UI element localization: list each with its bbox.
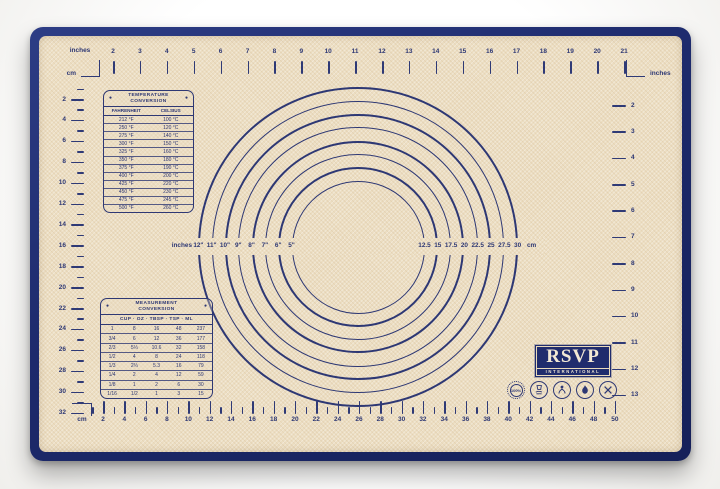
- top-ruler-tick: [463, 61, 465, 74]
- measurement-cell: 6: [168, 382, 190, 388]
- measurement-cell: 8: [145, 354, 167, 360]
- bottom-ruler-number: 14: [221, 416, 241, 424]
- bottom-ruler-minor-tick: [476, 407, 478, 414]
- bottom-ruler-minor-tick: [604, 407, 606, 414]
- top-ruler-tick: [624, 61, 626, 74]
- measurement-cell: 1/8: [101, 382, 123, 388]
- measurement-table-row: 1/24824118: [101, 353, 212, 362]
- left-ruler-number: 6: [38, 137, 66, 145]
- temperature-table-row: 375 °F190 °C: [104, 165, 193, 173]
- left-ruler-minor-tick: [77, 193, 84, 195]
- measurement-cell: 2/3: [101, 345, 123, 351]
- bottom-ruler-minor-tick: [284, 407, 286, 414]
- top-ruler-number: 9: [291, 48, 311, 56]
- temperature-cell: 230 °C: [149, 189, 194, 195]
- top-ruler-tick: [140, 61, 142, 74]
- hand-wash-icon: [530, 381, 548, 399]
- left-ruler-minor-tick: [77, 277, 84, 279]
- temperature-cell: 120 °C: [149, 125, 194, 131]
- temperature-cell: 140 °C: [149, 133, 194, 139]
- temperature-cell: 200 °C: [149, 173, 194, 179]
- bottom-ruler-tick: [124, 401, 126, 414]
- bullet-dot-icon: ●: [109, 96, 112, 101]
- temperature-cell: 212 °F: [104, 117, 149, 123]
- measurement-cell: 30: [190, 382, 212, 388]
- left-ruler-tick: [71, 350, 84, 352]
- measurement-table-row: 1/161/21315: [101, 390, 212, 398]
- right-ruler-tick: [612, 131, 626, 133]
- temperature-cell: 375 °F: [104, 165, 149, 171]
- temperature-table-row: 450 °F230 °C: [104, 189, 193, 197]
- measurement-table-row: 2/35⅓10.632158: [101, 344, 212, 353]
- measurement-cell: 237: [190, 326, 212, 332]
- bottom-ruler-tick: [231, 401, 233, 414]
- top-ruler-number: 5: [184, 48, 204, 56]
- temperature-cell: 250 °F: [104, 125, 149, 131]
- measurement-cell: 6: [123, 336, 145, 342]
- bottom-ruler-tick: [530, 401, 532, 414]
- circle-inch-label: 5": [281, 241, 303, 251]
- bottom-ruler-number: 20: [285, 416, 305, 424]
- bottom-ruler-minor-tick: [519, 407, 521, 414]
- top-ruler-tick: [274, 61, 276, 74]
- measurement-cell: 4: [145, 372, 167, 378]
- measurement-cell: 1/16: [101, 391, 123, 397]
- measurement-table-row: 1/32⅔5.31679: [101, 362, 212, 371]
- bottom-ruler-minor-tick: [220, 407, 222, 414]
- bottom-ruler-number: 16: [242, 416, 262, 424]
- bullet-dot-icon: ●: [106, 304, 109, 309]
- top-ruler-number: 21: [614, 48, 634, 56]
- bottom-ruler-number: 46: [562, 416, 582, 424]
- temperature-title-line1: TEMPERATURE: [128, 93, 169, 99]
- left-ruler-number: 2: [38, 96, 66, 104]
- temperature-table-title: ● TEMPERATURE CONVERSION ●: [104, 91, 193, 107]
- bottom-ruler-number: 36: [456, 416, 476, 424]
- top-ruler-tick: [382, 61, 384, 74]
- right-ruler-tick: [612, 105, 626, 107]
- right-ruler-tick: [612, 369, 626, 371]
- left-ruler-tick: [71, 329, 84, 331]
- measurement-table-row: 181648237: [101, 325, 212, 334]
- measurement-table-row: 1/812630: [101, 381, 212, 390]
- measurement-table-rows: 1816482373/4612361772/35⅓10.6321581/2482…: [101, 325, 212, 398]
- bottom-ruler-number: 30: [392, 416, 412, 424]
- bottom-ruler-minor-tick: [199, 407, 201, 414]
- left-ruler-number: 22: [38, 305, 66, 313]
- bottom-ruler-minor-tick: [540, 407, 542, 414]
- top-ruler-number: 15: [453, 48, 473, 56]
- left-ruler-number: 20: [38, 284, 66, 292]
- measurement-cell: 5.3: [145, 363, 167, 369]
- measurement-cell: 1: [145, 391, 167, 397]
- top-ruler-tick: [248, 61, 250, 74]
- bottom-ruler-minor-tick: [370, 407, 372, 414]
- measurement-cell: 12: [168, 372, 190, 378]
- left-ruler-minor-tick: [77, 402, 84, 404]
- circle-cm-label: cm: [527, 241, 553, 251]
- bottom-ruler-tick: [594, 401, 596, 414]
- right-ruler-number: 5: [631, 181, 653, 189]
- measurement-cell: 16: [168, 363, 190, 369]
- bottom-ruler-number: 44: [541, 416, 561, 424]
- bottom-ruler-number: 8: [157, 416, 177, 424]
- right-ruler-number: 2: [631, 102, 653, 110]
- left-ruler-tick: [71, 183, 84, 185]
- markings-layer: inches cm inches cm inches cm 2345678910…: [0, 0, 720, 489]
- left-ruler-minor-tick: [77, 318, 84, 320]
- temperature-cell: 190 °C: [149, 165, 194, 171]
- left-ruler-tick: [71, 141, 84, 143]
- rsvp-logo: RSVP INTERNATIONAL: [534, 344, 612, 378]
- left-ruler-tick: [71, 245, 84, 247]
- top-ruler-number: 11: [345, 48, 365, 56]
- bottom-ruler-minor-tick: [412, 407, 414, 414]
- left-ruler-tick: [71, 308, 84, 310]
- seal-100-icon: 100%: [507, 381, 525, 399]
- measurement-cell: 158: [190, 345, 212, 351]
- measurement-table-header: CUP · OZ · TBSP · TSP · ML: [101, 315, 212, 325]
- bottom-ruler-tick: [359, 401, 361, 414]
- left-ruler-number: 4: [38, 116, 66, 124]
- bottom-ruler-tick: [423, 401, 425, 414]
- top-ruler-number: 3: [130, 48, 150, 56]
- top-ruler-number: 6: [211, 48, 231, 56]
- left-ruler-tick: [71, 371, 84, 373]
- temperature-table-row: 212 °F100 °C: [104, 116, 193, 124]
- left-ruler-minor-tick: [77, 214, 84, 216]
- bottom-ruler-number: 42: [520, 416, 540, 424]
- bottom-ruler-number: 22: [306, 416, 326, 424]
- top-ruler-number: 10: [318, 48, 338, 56]
- bottom-ruler-tick: [466, 401, 468, 414]
- measurement-cell: 32: [168, 345, 190, 351]
- rsvp-logo-text: RSVP: [537, 347, 609, 368]
- top-ruler-tick: [570, 61, 572, 74]
- measurement-title-line1: MEASUREMENT: [136, 301, 178, 307]
- left-cm-label: cm: [48, 70, 76, 78]
- right-ruler-number: 3: [631, 128, 653, 136]
- bottom-ruler-tick: [615, 401, 617, 414]
- celsius-column-header: CELSIUS: [149, 108, 194, 114]
- bottom-ruler-number: 48: [584, 416, 604, 424]
- right-ruler-tick: [612, 184, 626, 186]
- left-ruler-tick: [71, 162, 84, 164]
- bottom-ruler-minor-tick: [242, 407, 244, 414]
- temperature-cell: 245 °C: [149, 197, 194, 203]
- measurement-title-line2: CONVERSION: [136, 307, 178, 313]
- heat-resistant-icon: [576, 381, 594, 399]
- temperature-table-rows: 212 °F100 °C250 °F120 °C275 °F140 °C300 …: [104, 116, 193, 212]
- left-ruler-number: 12: [38, 200, 66, 208]
- bottom-ruler-minor-tick: [455, 407, 457, 414]
- measurement-cell: 12: [145, 336, 167, 342]
- temperature-table-row: 250 °F120 °C: [104, 124, 193, 132]
- left-ruler-tick: [71, 204, 84, 206]
- top-ruler-number: 19: [560, 48, 580, 56]
- left-ruler-minor-tick: [77, 151, 84, 153]
- measurement-cell: 48: [168, 326, 190, 332]
- left-ruler-tick: [71, 413, 84, 415]
- bottom-ruler-tick: [295, 401, 297, 414]
- bottom-ruler-number: 26: [349, 416, 369, 424]
- measurement-table-row: 1/4241259: [101, 371, 212, 380]
- bottom-ruler-tick: [316, 401, 318, 414]
- left-ruler-number: 24: [38, 325, 66, 333]
- right-ruler-number: 8: [631, 260, 653, 268]
- temperature-cell: 100 °C: [149, 117, 194, 123]
- left-ruler-minor-tick: [77, 109, 84, 111]
- right-ruler-number: 4: [631, 154, 653, 162]
- left-ruler-tick: [71, 99, 84, 101]
- measurement-cell: 1/2: [101, 354, 123, 360]
- bottom-ruler-tick: [210, 401, 212, 414]
- measurement-cell: 1/4: [101, 372, 123, 378]
- bottom-ruler-number: 18: [264, 416, 284, 424]
- left-ruler-number: 28: [38, 367, 66, 375]
- measurement-cell: 1/2: [123, 391, 145, 397]
- top-ruler-tick: [517, 61, 519, 74]
- measurement-cell: 2: [123, 372, 145, 378]
- measurement-cell: 24: [168, 354, 190, 360]
- left-ruler-tick: [71, 266, 84, 268]
- right-ruler-number: 10: [631, 312, 653, 320]
- measurement-cell: 36: [168, 336, 190, 342]
- temperature-cell: 475 °F: [104, 197, 149, 203]
- bottom-ruler-minor-tick: [306, 407, 308, 414]
- right-ruler-number: 9: [631, 286, 653, 294]
- bottom-ruler-tick: [274, 401, 276, 414]
- bottom-ruler-tick: [188, 401, 190, 414]
- bottom-ruler-minor-tick: [135, 407, 137, 414]
- temperature-table-row: 350 °F180 °C: [104, 157, 193, 165]
- left-ruler-number: 32: [38, 409, 66, 417]
- measurement-cell: 2⅔: [123, 363, 145, 369]
- measurement-cell: 1/3: [101, 363, 123, 369]
- temperature-cell: 150 °C: [149, 141, 194, 147]
- bottom-ruler-number: 10: [178, 416, 198, 424]
- right-ruler-number: 7: [631, 233, 653, 241]
- left-ruler-minor-tick: [77, 235, 84, 237]
- left-ruler-minor-tick: [77, 339, 84, 341]
- top-ruler-tick: [301, 61, 303, 74]
- left-ruler-number: 30: [38, 388, 66, 396]
- right-ruler-number: 6: [631, 207, 653, 215]
- top-ruler-number: 16: [480, 48, 500, 56]
- top-ruler-number: 12: [372, 48, 392, 56]
- left-ruler-number: 10: [38, 179, 66, 187]
- no-knife-icon: [599, 381, 617, 399]
- left-ruler-tick: [71, 120, 84, 122]
- measurement-cell: 15: [190, 391, 212, 397]
- bottom-ruler-tick: [167, 401, 169, 414]
- top-ruler-number: 17: [507, 48, 527, 56]
- left-ruler-minor-tick: [77, 298, 84, 300]
- measurement-table-row: 3/461236177: [101, 334, 212, 343]
- top-ruler-number: 7: [238, 48, 258, 56]
- temperature-cell: 450 °F: [104, 189, 149, 195]
- bottom-ruler-minor-tick: [178, 407, 180, 414]
- temperature-cell: 325 °F: [104, 149, 149, 155]
- bottom-ruler-tick: [508, 401, 510, 414]
- temperature-cell: 350 °F: [104, 157, 149, 163]
- corner-bracket: [99, 60, 100, 77]
- bottom-ruler-number: 4: [114, 416, 134, 424]
- top-ruler-number: 4: [157, 48, 177, 56]
- top-ruler-tick: [167, 61, 169, 74]
- temperature-cell: 180 °C: [149, 157, 194, 163]
- bottom-ruler-minor-tick: [92, 407, 94, 414]
- bottom-ruler-tick: [572, 401, 574, 414]
- measurement-cell: 10.6: [145, 345, 167, 351]
- temperature-cell: 425 °F: [104, 181, 149, 187]
- bottom-ruler-minor-tick: [327, 407, 329, 414]
- bottom-ruler-number: 12: [200, 416, 220, 424]
- bottom-ruler-number: 28: [370, 416, 390, 424]
- bottom-ruler-number: 24: [328, 416, 348, 424]
- left-ruler-tick: [71, 392, 84, 394]
- right-ruler-tick: [612, 210, 626, 212]
- temperature-table-row: 400 °F200 °C: [104, 173, 193, 181]
- bottom-ruler-minor-tick: [114, 407, 116, 414]
- bullet-dot-icon: ●: [204, 304, 207, 309]
- food-grade-icon: [553, 381, 571, 399]
- bottom-ruler-minor-tick: [498, 407, 500, 414]
- temperature-cell: 220 °C: [149, 181, 194, 187]
- photo-background: { "mat": { "border_color": "#1d2a6c", "s…: [0, 0, 720, 489]
- measurement-conversion-table: ● MEASUREMENT CONVERSION ● CUP · OZ · TB…: [100, 298, 213, 399]
- bottom-ruler-number: 32: [413, 416, 433, 424]
- left-ruler-minor-tick: [77, 172, 84, 174]
- top-ruler-number: 20: [587, 48, 607, 56]
- bottom-ruler-tick: [444, 401, 446, 414]
- left-ruler-minor-tick: [77, 89, 84, 91]
- temperature-table-row: 475 °F245 °C: [104, 197, 193, 205]
- measurement-cell: 79: [190, 363, 212, 369]
- bottom-cm-label: cm: [70, 416, 94, 424]
- bottom-ruler-tick: [146, 401, 148, 414]
- fahrenheit-column-header: FAHRENHEIT: [104, 108, 149, 114]
- bottom-ruler-minor-tick: [434, 407, 436, 414]
- temperature-table-row: 300 °F150 °C: [104, 140, 193, 148]
- temperature-cell: 300 °F: [104, 141, 149, 147]
- top-ruler-tick: [194, 61, 196, 74]
- bottom-ruler-tick: [551, 401, 553, 414]
- top-ruler-tick: [409, 61, 411, 74]
- bottom-ruler-number: 2: [93, 416, 113, 424]
- bottom-ruler-number: 40: [498, 416, 518, 424]
- measurement-cell: 59: [190, 372, 212, 378]
- left-ruler-number: 18: [38, 263, 66, 271]
- bottom-ruler-tick: [402, 401, 404, 414]
- bottom-ruler-minor-tick: [583, 407, 585, 414]
- temperature-table-row: 425 °F220 °C: [104, 181, 193, 189]
- top-right-inches-label: inches: [650, 70, 690, 78]
- bottom-ruler-minor-tick: [263, 407, 265, 414]
- right-ruler-number: 11: [631, 339, 653, 347]
- top-ruler-number: 2: [103, 48, 123, 56]
- measurement-cell: 2: [145, 382, 167, 388]
- corner-bracket: [81, 76, 100, 77]
- right-ruler-number: 13: [631, 391, 653, 399]
- corner-bracket: [626, 76, 645, 77]
- bottom-ruler-minor-tick: [391, 407, 393, 414]
- left-ruler-minor-tick: [77, 256, 84, 258]
- bullet-dot-icon: ●: [185, 96, 188, 101]
- right-ruler-tick: [612, 342, 626, 344]
- bottom-ruler-tick: [103, 401, 105, 414]
- left-ruler-minor-tick: [77, 130, 84, 132]
- top-ruler-tick: [328, 61, 330, 74]
- temperature-cell: 400 °F: [104, 173, 149, 179]
- measurement-cell: 3/4: [101, 336, 123, 342]
- right-ruler-tick: [612, 263, 626, 265]
- top-ruler-tick: [436, 61, 438, 74]
- left-ruler-number: 16: [38, 242, 66, 250]
- temperature-table-row: 325 °F160 °C: [104, 148, 193, 156]
- bottom-ruler-minor-tick: [156, 407, 158, 414]
- measurement-table-title: ● MEASUREMENT CONVERSION ●: [101, 299, 212, 315]
- bottom-ruler-number: 34: [434, 416, 454, 424]
- bottom-ruler-number: 50: [605, 416, 625, 424]
- temperature-cell: 260 °C: [149, 205, 194, 211]
- bottom-ruler-tick: [252, 401, 254, 414]
- measurement-cell: 4: [123, 354, 145, 360]
- right-ruler-tick: [612, 237, 626, 239]
- left-ruler-tick: [71, 287, 84, 289]
- bottom-ruler-minor-tick: [562, 407, 564, 414]
- temperature-table-header: FAHRENHEIT CELSIUS: [104, 107, 193, 116]
- measurement-cell: 3: [168, 391, 190, 397]
- corner-bracket: [626, 60, 627, 77]
- measurement-cell: 1: [123, 382, 145, 388]
- top-ruler-tick: [221, 61, 223, 74]
- top-ruler-tick: [543, 61, 545, 74]
- left-ruler-number: 8: [38, 158, 66, 166]
- bottom-ruler-tick: [380, 401, 382, 414]
- bottom-ruler-number: 6: [136, 416, 156, 424]
- temperature-conversion-table: ● TEMPERATURE CONVERSION ● FAHRENHEIT CE…: [103, 90, 194, 213]
- circle-inches-label: inches: [150, 241, 192, 251]
- temperature-title-line2: CONVERSION: [128, 99, 169, 105]
- top-ruler-tick: [113, 61, 115, 74]
- measurement-cell: 8: [123, 326, 145, 332]
- top-ruler-tick: [355, 61, 357, 74]
- right-ruler-tick: [612, 158, 626, 160]
- measurement-cell: 118: [190, 354, 212, 360]
- left-ruler-number: 26: [38, 346, 66, 354]
- seal-100-label: 100%: [510, 384, 523, 397]
- top-ruler-number: 8: [264, 48, 284, 56]
- bottom-ruler-tick: [487, 401, 489, 414]
- top-ruler-number: 18: [533, 48, 553, 56]
- measurement-cell: 5⅓: [123, 345, 145, 351]
- measurement-cell: 16: [145, 326, 167, 332]
- bottom-ruler-number: 38: [477, 416, 497, 424]
- right-ruler-tick: [612, 290, 626, 292]
- left-ruler-number: 14: [38, 221, 66, 229]
- top-ruler-tick: [597, 61, 599, 74]
- right-ruler-number: 12: [631, 365, 653, 373]
- temperature-table-row: 275 °F140 °C: [104, 132, 193, 140]
- bottom-ruler-tick: [338, 401, 340, 414]
- left-ruler-tick: [71, 224, 84, 226]
- top-ruler-number: 13: [399, 48, 419, 56]
- top-left-inches-label: inches: [58, 47, 102, 55]
- temperature-cell: 160 °C: [149, 149, 194, 155]
- temperature-cell: 500 °F: [104, 205, 149, 211]
- top-ruler-number: 14: [426, 48, 446, 56]
